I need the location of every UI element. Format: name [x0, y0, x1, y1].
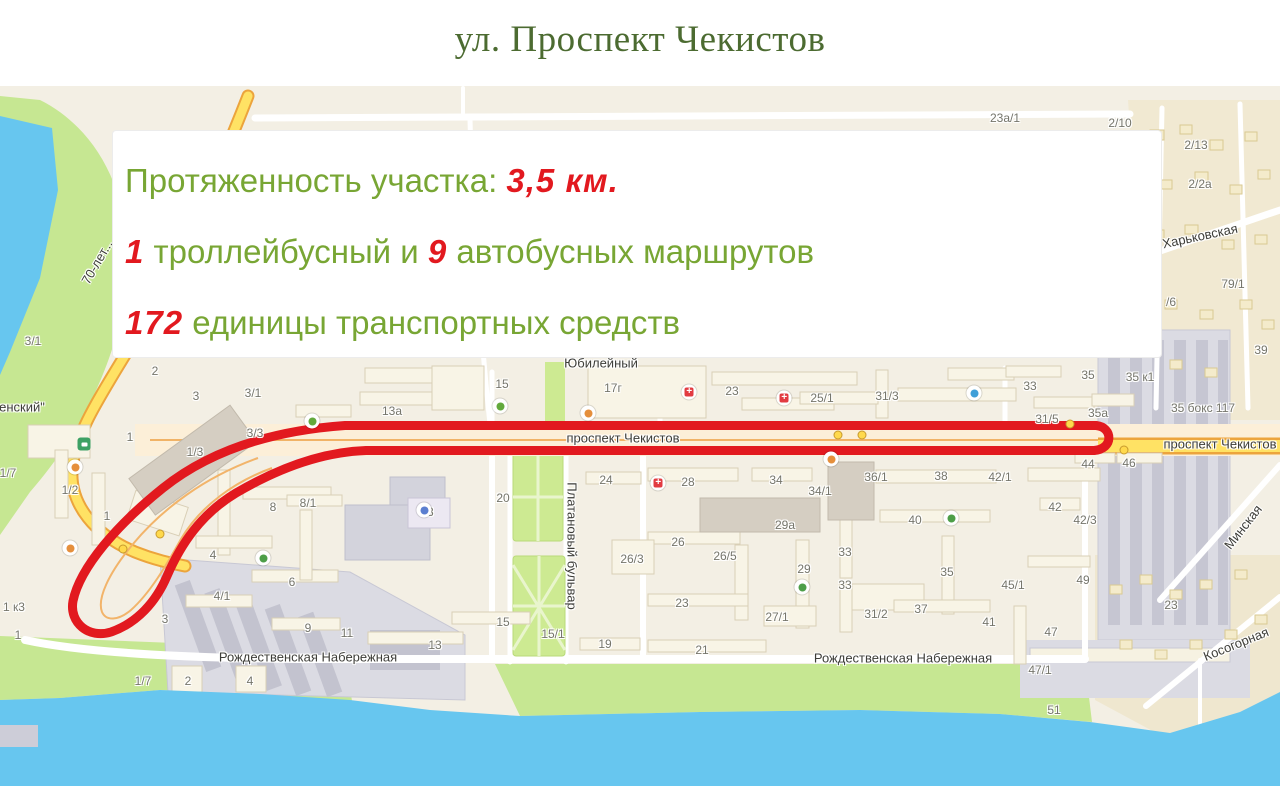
building-number-label: 8/1 [300, 496, 317, 510]
cart-icon [305, 414, 320, 429]
info-box: Протяженность участка: 3,5 км. 1 троллей… [112, 130, 1162, 358]
building-number-label: 31/5 [1035, 412, 1058, 426]
building-number-label: 28 [681, 475, 694, 489]
dot-icon [835, 432, 842, 439]
trolleybus-label: троллейбусный и [144, 233, 428, 270]
school-icon [417, 503, 432, 518]
building-number-label: 34/1 [808, 484, 831, 498]
building-number-label: 2/2а [1188, 177, 1211, 191]
building-number-label: 9 [305, 621, 312, 635]
building-number-label: 2/13 [1184, 138, 1207, 152]
building-number-label: 3 [193, 389, 200, 403]
building-number-label: 1 [15, 628, 22, 642]
page-title: ул. Проспект Чекистов [0, 0, 1280, 86]
cafe-icon [63, 541, 78, 556]
dot-icon [120, 546, 127, 553]
building-number-label: 25/1 [810, 391, 833, 405]
building-number-label: 29а [775, 518, 795, 532]
building-number-label: 35 к1 [1126, 370, 1155, 384]
building-number-label: 1/7 [0, 466, 16, 480]
vehicles-count: 172 [125, 304, 183, 341]
building-number-label: 13 [428, 638, 441, 652]
street-label: енский" [0, 400, 45, 415]
map-viewport[interactable]: проспект Чекистовпроспект ЧекистовРождес… [0, 0, 1280, 786]
building-number-label: 51 [1047, 703, 1060, 717]
building-number-label: 47/1 [1028, 663, 1051, 677]
building-number-label: 4 [247, 674, 254, 688]
building-number-label: 15 [495, 377, 508, 391]
building-number-label: 6 [289, 575, 296, 589]
building-number-label: 1 к3 [3, 600, 25, 614]
building-number-label: 1/7 [135, 674, 152, 688]
building-number-label: 49 [1076, 573, 1089, 587]
cafe-icon [68, 460, 83, 475]
building-number-label: 35а [1088, 406, 1108, 420]
building-number-label: 1 [127, 430, 134, 444]
building-number-label: 3 [162, 612, 169, 626]
building-number-label: 1 [104, 509, 111, 523]
building-number-label: 1/2 [62, 483, 79, 497]
vehicles-label: единицы транспортных средств [183, 304, 680, 341]
building-number-label: /6 [1166, 295, 1176, 309]
building-number-label: 33 [838, 578, 851, 592]
building-number-label: 19 [598, 637, 611, 651]
length-label: Протяженность участка: [125, 162, 506, 199]
bus-count: 9 [428, 233, 447, 270]
cart-icon [493, 399, 508, 414]
building-number-label: 23а/1 [990, 111, 1020, 125]
building-number-label: 2 [185, 674, 192, 688]
street-label: Рождественская Набережная [219, 650, 397, 665]
building-number-label: 13а [382, 404, 402, 418]
building-number-label: 45/1 [1001, 578, 1024, 592]
building-number-label: 40 [908, 513, 921, 527]
cafe-icon [581, 406, 596, 421]
cross-icon [651, 476, 666, 491]
building-number-label: 4 [210, 548, 217, 562]
building-number-label: 37 [914, 602, 927, 616]
building-number-label: 26 [671, 535, 684, 549]
building-number-label: 1/3 [187, 445, 204, 459]
info-line-routes: 1 троллейбусный и 9 автобусных маршрутов [125, 216, 1161, 287]
building-number-label: 24 [599, 473, 612, 487]
dot-icon [859, 432, 866, 439]
building-number-label: 33 [838, 545, 851, 559]
building-number-label: 35 бокс 117 [1171, 401, 1235, 415]
building-number-label: 34 [769, 473, 782, 487]
street-label: Рождественская Набережная [814, 651, 992, 666]
building-number-label: 27/1 [765, 610, 788, 624]
bus-label: автобусных маршрутов [447, 233, 814, 270]
building-number-label: 3/3 [247, 426, 264, 440]
building-number-label: 29 [797, 562, 810, 576]
length-value: 3,5 км. [506, 162, 618, 199]
building-number-label: 39 [1254, 343, 1267, 357]
building-number-label: 23 [675, 596, 688, 610]
info-line-vehicles: 172 единицы транспортных средств [125, 287, 1161, 358]
building-number-label: 44 [1081, 457, 1094, 471]
street-label: Платановый бульвар [565, 482, 580, 609]
building-number-label: 31/3 [875, 389, 898, 403]
building-number-label: 79/1 [1221, 277, 1244, 291]
building-number-label: 31/2 [864, 607, 887, 621]
building-number-label: 35 [1081, 368, 1094, 382]
building-number-label: 4/1 [214, 589, 231, 603]
building-number-label: 23 [725, 384, 738, 398]
building-number-label: 35 [940, 565, 953, 579]
dot-icon [1121, 447, 1128, 454]
building-number-label: 3/1 [25, 334, 42, 348]
building-number-label: 2 [152, 364, 159, 378]
pool-icon [967, 386, 982, 401]
building-number-label: 17г [604, 381, 622, 395]
building-number-label: 42/3 [1073, 513, 1096, 527]
street-label: проспект Чекистов [1164, 437, 1277, 452]
building-number-label: 33 [1023, 379, 1036, 393]
building-number-label: 46 [1122, 456, 1135, 470]
cross-icon [777, 391, 792, 406]
building-number-label: 42 [1048, 500, 1061, 514]
street-label: проспект Чекистов [567, 431, 680, 446]
building-number-label: 20 [496, 491, 509, 505]
cross-icon [682, 385, 697, 400]
building-number-label: 38 [934, 469, 947, 483]
dot-icon [1067, 421, 1074, 428]
building-number-label: 3/1 [245, 386, 262, 400]
building-number-label: 47 [1044, 625, 1057, 639]
tree-icon [944, 511, 959, 526]
tree-icon [795, 580, 810, 595]
building-number-label: 15/1 [541, 627, 564, 641]
dot-icon [157, 531, 164, 538]
building-number-label: 23 [1164, 598, 1177, 612]
building-number-label: 26/5 [713, 549, 736, 563]
building-number-label: 21 [695, 643, 708, 657]
tree-icon [256, 551, 271, 566]
building-number-label: 8 [270, 500, 277, 514]
building-number-label: 2/10 [1108, 116, 1131, 130]
bus-icon [78, 438, 91, 451]
info-line-length: Протяженность участка: 3,5 км. [125, 145, 1161, 216]
building-number-label: 42/1 [988, 470, 1011, 484]
building-number-label: 15 [496, 615, 509, 629]
cafe-icon [824, 452, 839, 467]
slide: проспект Чекистовпроспект ЧекистовРождес… [0, 0, 1280, 786]
trolleybus-count: 1 [125, 233, 144, 270]
building-number-label: 41 [982, 615, 995, 629]
building-number-label: 11 [341, 626, 353, 640]
building-number-label: 26/3 [620, 552, 643, 566]
building-number-label: 36/1 [864, 470, 887, 484]
